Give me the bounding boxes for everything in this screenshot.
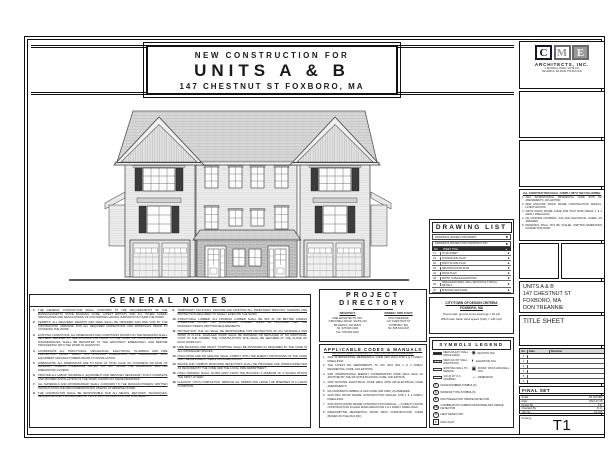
legend-row: FFAN LIGHT [430,419,513,425]
logo-letter-c: C [535,45,552,60]
heat-detector-icon: H [433,412,439,418]
general-notes-title: GENERAL NOTES [30,295,310,307]
drawing-list: DRAWING LIST DRAWINGS ISSUED FOR PERMIT … [429,219,514,294]
shutter [139,206,146,233]
revision-table: No. Date Revision 1 2 3 4 5 6 [519,348,605,384]
architect-contact: ARCHITECT: CME ARCHITECTS, INC. 4 BICKNE… [324,312,371,335]
co-smoke-detector-icon: CS [433,405,439,411]
room-tag-icon: ▣ [472,367,477,372]
wall-swatch-open [433,368,442,371]
symbols-legend: SYMBOLS LEGEND NEW 2x6 EXT. WALL (INSULA… [429,337,514,428]
applicable-codes-title: APPLICABLE CODES & MANUALS [320,345,426,352]
field-row: Job No.:21-016 [520,411,604,414]
entry-door-unit-b [268,246,289,277]
logo-letter-m: M [554,45,571,60]
garage-doors-right [304,240,364,277]
issued-dot: ● [506,242,508,246]
window-type-icon: A [433,390,439,396]
stamp-box-1 [519,91,605,138]
title-sheet-page: NEW CONSTRUCTION FOR UNITS A & B 147 CHE… [0,0,612,473]
front-elevation-drawing [59,99,419,289]
left-bay-wall [109,205,125,246]
shutter [176,168,183,191]
shutter [315,206,322,233]
entry-door-unit-a [205,246,226,277]
legend-row: HHEAT DETECTOR [430,412,513,418]
drawing-list-row: A6SIDE ELEVATIONS, WALL SECTION & TYPICA… [432,281,511,288]
compliance-notes: ALL CONSTRUCTION SHALL COMPLY WITH THE F… [519,189,605,241]
drawing-list-row: A8FIRST & SECOND FLOOR ELECTRICAL PLANS● [432,293,511,294]
legend-row: 1DOOR NUMBER SYMBOL(S) [430,383,513,389]
seal-box [561,243,605,279]
general-notes-column-1: 1.THE GENERAL CONTRACTOR SHALL CONFORM T… [33,309,168,400]
issue-row: DRAWINGS ISSUED FOR CONSTRUCTION ● [432,241,511,247]
stamp-box-2 [519,140,605,187]
drawing-list-title: DRAWING LIST [432,222,512,233]
shutter [135,168,142,191]
sheet-number-box: Drawing: T1 [519,415,605,435]
garage-doors-left [130,240,190,277]
section-tag-icon: ◉ [472,351,476,356]
title-block: NEW CONSTRUCTION FOR UNITS A & B 147 CHE… [146,45,398,95]
sheet-title: TITLE SHEET [519,315,605,346]
applicable-codes: APPLICABLE CODES & MANUALS ALL WORK SHAL… [319,344,427,428]
shutter [352,168,359,191]
shutter [348,206,355,233]
shutter [172,206,179,233]
general-notes: GENERAL NOTES 1.THE GENERAL CONTRACTOR S… [29,294,311,428]
project-directory: PROJECT DIRECTORY ARCHITECT: CME ARCHITE… [319,289,427,342]
logo-letter-e: E [572,45,589,60]
final-set-bar: FINAL SET [519,386,605,394]
design-criteria: CITY/TOWN OF DESIGN CRITERIA FOXBORO, MA… [429,297,514,334]
wall-swatch-hatched [433,360,442,363]
legend-row: NEW 2x4 INT. WALL (PARTITION) ◐ELEVATION… [430,359,513,365]
revision-row: 6 [520,379,604,384]
general-notes-column-2: 9.TEMPORARY FACILITIES: PROVIDE AND MAIN… [173,309,308,400]
legend-row: AWINDOW TYPE SYMBOL(S) [430,390,513,396]
issued-dot: ● [506,235,508,239]
right-bay-wall [371,205,387,246]
wall-swatch-solid [433,352,442,355]
title-line-3: 147 CHESTNUT ST FOXBORO, MA [148,82,396,91]
legend-row: NEW 2x6 EXT. WALL (INSULATED) ◉SECTION T… [430,351,513,357]
legend-row: SPHOTOELECTRIC SMOKE DETECTOR [430,397,513,403]
drawing-list-header: NO. SHEET TITLE ● [432,247,511,251]
entry-portico-roof [193,230,301,240]
legend-row: EXISTING WALL TO REMAIN ▣ROOM / ROOF AND… [430,367,513,373]
consultant-box [519,243,559,279]
title-line-1: NEW CONSTRUCTION FOR [148,51,396,60]
shutter [311,168,318,191]
door-number-icon: 1 [433,383,439,389]
architect-logo: C M E ARCHITECTS, INC. 4 BICKNELL ROAD, … [519,41,605,89]
symbols-legend-title: SYMBOLS LEGEND [432,340,511,350]
dimension-icon: ↔ [472,375,477,380]
legend-row: CSCOMBINATION CARBON MONOXIDE AND SMOKE … [430,404,513,410]
elevation-tag-icon: ◐ [472,359,475,364]
legend-row: 2x6 @ 16" O.C. FRAMING ↔DIMENSION [430,375,513,381]
sheet-number: T1 [520,416,604,434]
fan-light-icon: F [433,419,439,425]
project-info: UNITS A & B 147 CHESTNUT ST FOXBORO, MA … [519,281,605,313]
issue-row: DRAWINGS ISSUED FOR PERMIT ● [432,234,511,240]
smoke-detector-icon: S [433,397,439,403]
framing-callout-icon [433,376,442,379]
owner-contact: OWNER / APPLICANT: DON TREANNIE 147 CHES… [375,312,422,335]
project-directory-title: PROJECT DIRECTORY [320,290,426,308]
titleblock-fields: Scale:AS NOTED Date:2021.07.26 Drawn By:… [519,395,605,414]
title-line-2: UNITS A & B [148,61,396,81]
sheet-border: NEW CONSTRUCTION FOR UNITS A & B 147 CHE… [24,36,605,438]
